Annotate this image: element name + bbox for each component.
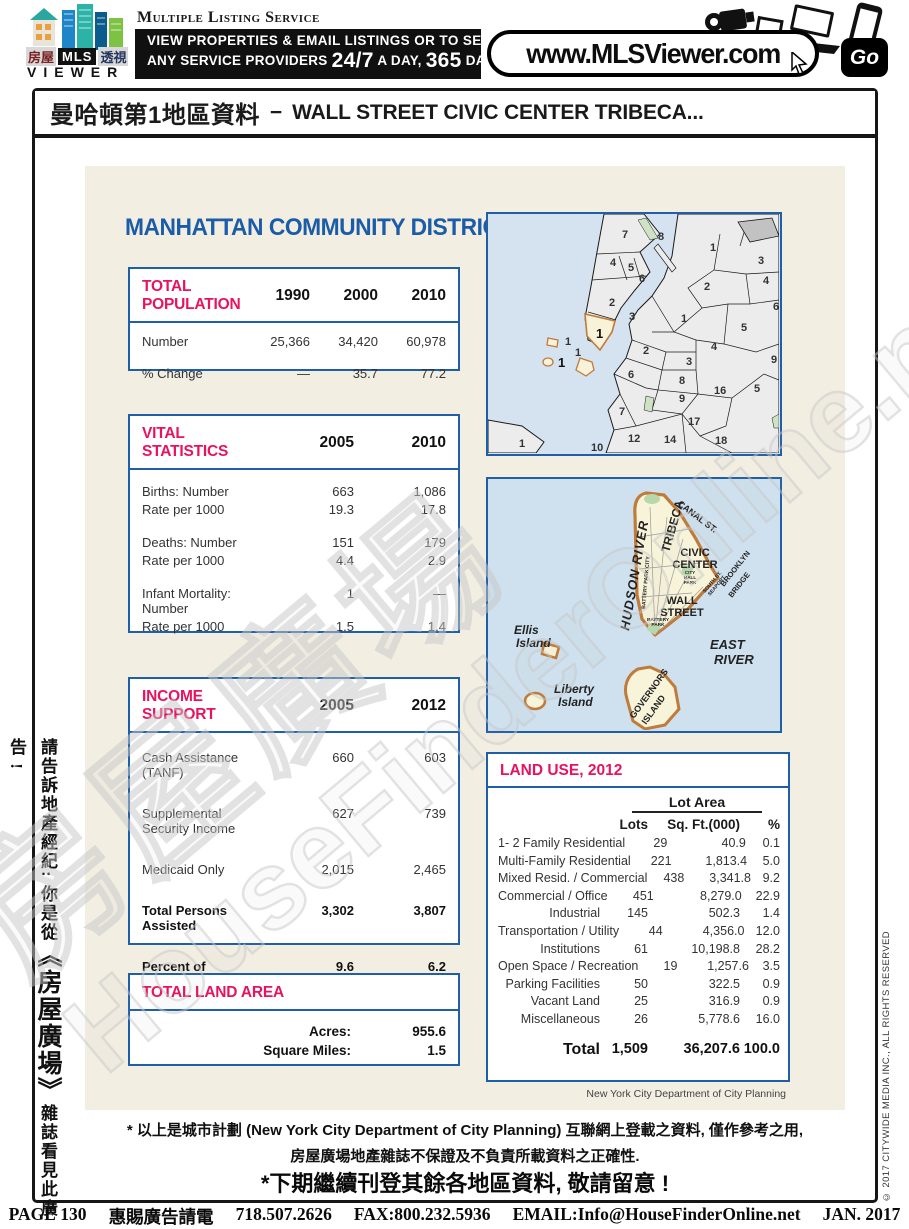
income-title: INCOME SUPPORT — [142, 688, 262, 724]
nyc-districts-map: 7 8 4 5 6 2 3 1 1 1 1 1 3 2 4 1 5 6 2 3 … — [486, 212, 782, 456]
svg-text:9: 9 — [771, 354, 777, 366]
magazine-name: 《房屋廣場》 — [34, 942, 61, 1104]
table-row: Cash Assistance (TANF) 660 603 — [130, 750, 458, 780]
table-row: Commercial / Office 451 8,279.0 22.9 — [488, 888, 788, 906]
svg-text:8: 8 — [679, 375, 685, 387]
vital-title: VITAL STATISTICS — [142, 425, 262, 461]
table-row: Supplemental Security Income 627 739 — [130, 806, 458, 836]
svg-text:3: 3 — [629, 311, 635, 323]
svg-text:RIVER: RIVER — [714, 652, 754, 667]
wall-street-label: WALL — [666, 595, 697, 607]
svg-text:2: 2 — [609, 297, 615, 309]
land-area-table: TOTAL LAND AREA Acres: 955.6 Square Mile… — [128, 973, 460, 1066]
svg-text:3: 3 — [686, 356, 692, 368]
svg-text:9: 9 — [679, 393, 685, 405]
mls-service-title: Multiple Listing Service — [137, 9, 320, 27]
disclaimer: * 以上是城市計劃 (New York City Department of C… — [90, 1118, 840, 1169]
svg-text:10: 10 — [591, 442, 603, 453]
district-title-cn: 曼哈頓第1地區資料 — [50, 95, 260, 130]
svg-text:6: 6 — [628, 369, 634, 381]
vital-statistics-table: VITAL STATISTICS 2005 2010 Births: Numbe… — [128, 414, 460, 633]
income-support-table: INCOME SUPPORT 2005 2012 Cash Assistance… — [128, 677, 460, 945]
table-row: Rate per 1000 19.3 17.8 — [130, 502, 458, 517]
svg-text:5: 5 — [741, 322, 747, 334]
vital-year-2010: 2010 — [354, 434, 446, 452]
svg-text:4: 4 — [763, 275, 770, 287]
svg-text:PARK: PARK — [684, 580, 697, 585]
banner-247: 24/7 — [332, 49, 374, 72]
cursor-icon — [790, 52, 808, 74]
table-row: Transportation / Utility 44 4,356.0 12.0 — [488, 923, 788, 941]
civic-center-label: CIVIC — [680, 547, 709, 559]
district-1-detail-map: HUDSON RIVER TRIBECA CANAL ST. CIVIC CEN… — [486, 477, 782, 733]
svg-text:1: 1 — [710, 242, 716, 254]
svg-text:1: 1 — [519, 438, 525, 450]
table-row: Parking Facilities 50 322.5 0.9 — [488, 976, 788, 994]
logo-viewer-text: VIEWER — [27, 64, 124, 80]
footer-fax: FAX:800.232.5936 — [354, 1204, 491, 1229]
svg-text:PARK: PARK — [651, 622, 665, 628]
banner-365: 365 — [426, 49, 462, 72]
population-year-1990: 1990 — [242, 287, 310, 305]
page-number: PAGE 130 — [9, 1204, 87, 1229]
svg-text:Island: Island — [516, 636, 551, 650]
land-use-columns: Lots Sq. Ft.(000) % — [488, 815, 788, 835]
disclaimer-line-1: * 以上是城市計劃 (New York City Department of C… — [90, 1118, 840, 1144]
svg-text:4: 4 — [610, 257, 617, 269]
district-title-bar: 曼哈頓第1地區資料 − WALL STREET CIVIC CENTER TRI… — [35, 91, 875, 138]
banner-line2-pre: ANY SERVICE PROVIDERS — [147, 53, 328, 68]
title-dash: − — [270, 101, 282, 125]
svg-text:7: 7 — [619, 406, 625, 418]
svg-text:6: 6 — [773, 301, 779, 313]
copyright-text: © 2017 CITYWIDE MEDIA INC., ALL RIGHTS R… — [881, 962, 892, 1202]
next-issue-notice: *下期繼續刊登其餘各地區資料, 敬請留意 ! — [90, 1166, 840, 1198]
table-row: Acres: 955.6 — [130, 1024, 458, 1039]
population-year-2010: 2010 — [378, 287, 446, 305]
svg-text:4: 4 — [711, 341, 718, 353]
svg-text:1: 1 — [681, 313, 687, 325]
logo-buildings-icon — [28, 4, 130, 50]
page-header: 房屋MLS透視 VIEWER Multiple Listing Service … — [0, 0, 909, 86]
main-heading: MANHATTAN COMMUNITY DISTRICT 1 — [125, 214, 530, 242]
table-row: Open Space / Recreation 19 1,257.6 3.5 — [488, 958, 788, 976]
svg-text:18: 18 — [715, 435, 727, 447]
table-row: Square Miles: 1.5 — [130, 1043, 458, 1058]
income-year-2012: 2012 — [354, 697, 446, 715]
svg-text:2: 2 — [704, 281, 710, 293]
lot-area-header: Lot Area — [632, 794, 762, 813]
camcorder-icon — [705, 8, 755, 31]
svg-text:1: 1 — [575, 347, 581, 359]
svg-text:16: 16 — [714, 385, 726, 397]
svg-text:7: 7 — [622, 229, 628, 241]
table-row: Institutions 61 10,198.8 28.2 — [488, 941, 788, 959]
logo-mls: MLS — [58, 48, 96, 65]
district-title-en: WALL STREET CIVIC CENTER TRIBECA... — [292, 101, 703, 125]
table-row: Rate per 1000 1.5 1.4 — [130, 619, 458, 634]
svg-text:2: 2 — [643, 345, 649, 357]
table-row: Industrial 145 502.3 1.4 — [488, 905, 788, 923]
table-row: Mixed Resid. / Commercial 438 3,341.8 9.… — [488, 870, 788, 888]
page-footer: PAGE 130 惠賜廣告請電 718.507.2626 FAX:800.232… — [0, 1204, 909, 1229]
banner-line-1: VIEW PROPERTIES & EMAIL LISTINGS OR TO S… — [147, 33, 471, 48]
land-use-title: LAND USE, 2012 — [500, 762, 622, 779]
banner-line-2: ANY SERVICE PROVIDERS 24/7 A DAY, 365 DA… — [147, 49, 471, 73]
svg-text:1: 1 — [558, 355, 565, 370]
table-row: Total Persons Assisted 3,302 3,807 — [130, 903, 458, 933]
left-margin-text: 請告訴地產經紀: 你是從《房屋廣場》雜誌看見此廣告 ! — [4, 738, 65, 1218]
table-row: Births: Number 663 1,086 — [130, 484, 458, 499]
svg-text:Island: Island — [558, 695, 593, 709]
ellis-island-label: Ellis — [514, 623, 539, 637]
land-use-table: LAND USE, 2012 Lot Area Lots Sq. Ft.(000… — [486, 752, 790, 1082]
website-url[interactable]: www.MLSViewer.com — [526, 38, 780, 70]
liberty-island-label: Liberty — [554, 682, 595, 696]
banner-a-day: A DAY, — [377, 53, 421, 68]
land-area-title: TOTAL LAND AREA — [142, 984, 446, 1002]
land-use-total-row: Total 1,509 36,207.6 100.0 — [488, 1029, 788, 1059]
website-url-button[interactable]: www.MLSViewer.com — [487, 30, 819, 77]
population-header: TOTAL POPULATION 1990 2000 2010 — [130, 269, 458, 323]
income-year-2005: 2005 — [262, 697, 354, 715]
svg-text:1: 1 — [596, 326, 603, 341]
table-row: Rate per 1000 4.4 2.9 — [130, 553, 458, 568]
east-river-label: EAST — [710, 637, 746, 652]
land-area-header: TOTAL LAND AREA — [130, 975, 458, 1011]
vital-header: VITAL STATISTICS 2005 2010 — [130, 416, 458, 470]
land-use-body: 1- 2 Family Residential 29 40.9 0.1 Mult… — [488, 835, 788, 1029]
svg-text:8: 8 — [658, 231, 664, 243]
table-row: Multi-Family Residential 221 1,813.4 5.0 — [488, 853, 788, 871]
table-row: Vacant Land 25 316.9 0.9 — [488, 993, 788, 1011]
footer-date: JAN. 2017 — [823, 1204, 901, 1229]
go-button[interactable]: Go — [841, 38, 888, 77]
income-header: INCOME SUPPORT 2005 2012 — [130, 679, 458, 733]
svg-text:17: 17 — [688, 416, 700, 428]
population-year-2000: 2000 — [310, 287, 378, 305]
vital-year-2005: 2005 — [262, 434, 354, 452]
table-row: Number 25,366 34,420 60,978 — [130, 334, 458, 349]
table-row: Infant Mortality: Number 1 — — [130, 586, 458, 616]
go-label: Go — [850, 46, 879, 70]
population-table: TOTAL POPULATION 1990 2000 2010 Number 2… — [128, 267, 460, 371]
land-use-header: LAND USE, 2012 — [488, 754, 788, 788]
land-use-source: New York City Department of City Plannin… — [486, 1088, 786, 1100]
footer-phone[interactable]: 718.507.2626 — [236, 1204, 332, 1229]
table-row: 1- 2 Family Residential 29 40.9 0.1 — [488, 835, 788, 853]
svg-text:3: 3 — [758, 255, 764, 267]
table-row: Miscellaneous 26 5,778.6 16.0 — [488, 1011, 788, 1029]
svg-text:14: 14 — [664, 434, 677, 446]
table-row: Medicaid Only 2,015 2,465 — [130, 862, 458, 877]
table-row: Deaths: Number 151 179 — [130, 535, 458, 550]
footer-ad-cn: 惠賜廣告請電 — [109, 1204, 214, 1229]
svg-text:5: 5 — [754, 383, 760, 395]
svg-text:12: 12 — [628, 433, 640, 445]
header-banner: VIEW PROPERTIES & EMAIL LISTINGS OR TO S… — [135, 29, 481, 79]
footer-email[interactable]: EMAIL:Info@HouseFinderOnline.net — [513, 1204, 801, 1229]
svg-text:6: 6 — [639, 273, 645, 285]
population-title: TOTAL POPULATION — [142, 278, 242, 314]
table-row: % Change — 35.7 77.2 — [130, 366, 458, 381]
svg-text:1: 1 — [565, 336, 571, 348]
svg-text:5: 5 — [628, 262, 634, 274]
